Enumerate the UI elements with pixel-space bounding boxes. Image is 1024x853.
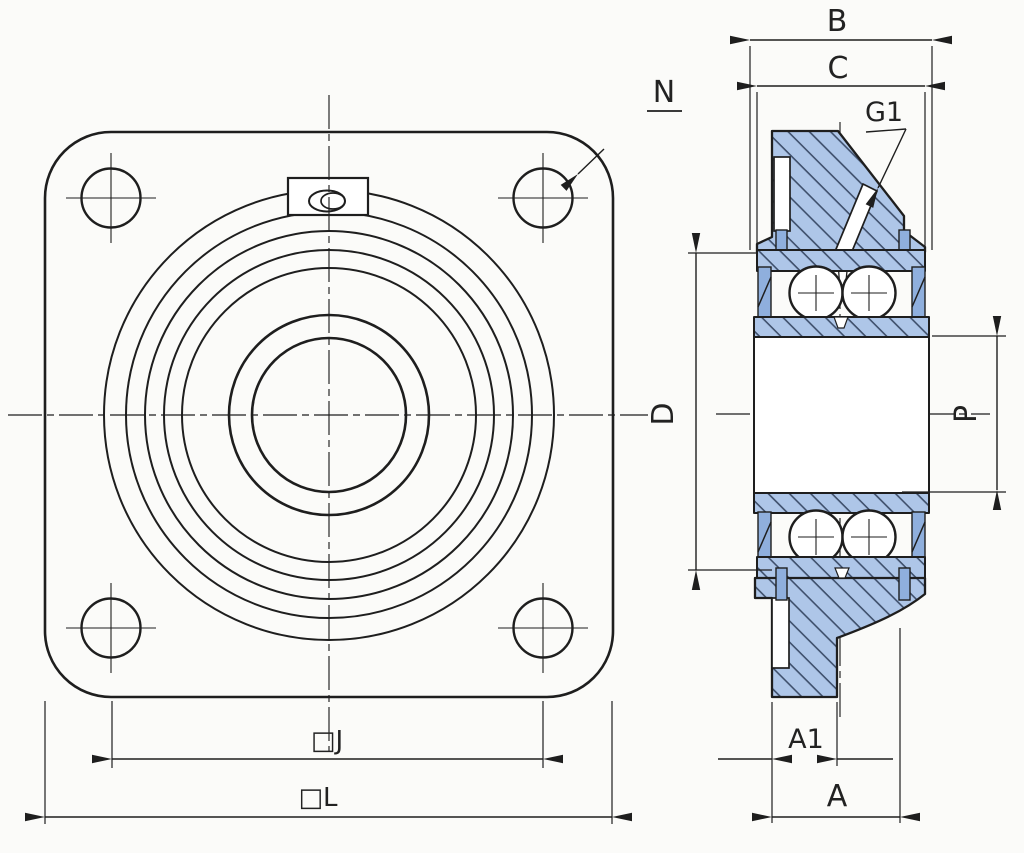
lower-relief-slot — [772, 598, 789, 668]
shaft-bore — [754, 337, 929, 493]
label-d: D — [646, 402, 681, 425]
lower-seal-tab-right — [899, 568, 910, 600]
n-leader-arrow — [578, 149, 604, 174]
label-a1: A1 — [788, 724, 824, 755]
front-view: N □J □L — [8, 75, 682, 824]
label-j: □J — [311, 726, 343, 756]
lower-seal-tab-left — [776, 568, 787, 600]
label-g1: G1 — [865, 97, 903, 128]
upper-seal-tab-right — [899, 230, 910, 252]
label-c: C — [828, 51, 849, 86]
drawing-canvas: N □J □L — [0, 0, 1024, 853]
grease-nipple-block — [288, 178, 368, 215]
dimension-a1: A1 — [718, 702, 893, 823]
label-l: □L — [298, 783, 338, 813]
label-p: P — [949, 405, 984, 423]
label-b: B — [827, 4, 848, 39]
upper-outer-ring — [757, 250, 925, 271]
lower-inner-ring — [754, 493, 929, 513]
callout-n: N — [578, 75, 682, 174]
upper-seal-tab-left — [776, 230, 787, 252]
label-n: N — [653, 75, 675, 110]
label-a: A — [827, 779, 848, 814]
dimension-j: □J — [112, 701, 543, 768]
technical-drawing: N □J □L — [0, 0, 1024, 853]
g1-leader — [866, 129, 906, 132]
g1-leader-arrow — [878, 129, 906, 188]
section-view: B C G1 D P — [646, 4, 1006, 823]
upper-relief-slot — [774, 157, 790, 231]
